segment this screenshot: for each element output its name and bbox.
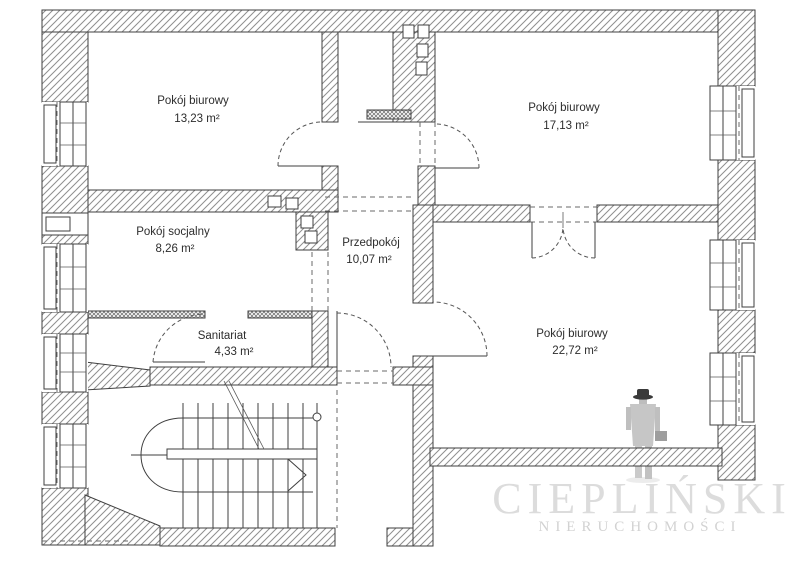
- room-name-label: Pokój socjalny: [136, 226, 210, 238]
- flue-box: [403, 25, 414, 38]
- wall-office3-bottom: [430, 448, 722, 466]
- wall-sanitariat-right: [312, 311, 328, 369]
- wall-stairs-angled-top: [85, 362, 150, 390]
- watermark-brand: CIEPLIŃSKI: [492, 474, 792, 523]
- room-name-label: Pokój biurowy: [536, 328, 608, 340]
- wall-stairs-bottom: [387, 528, 413, 546]
- room-name-label: Pokój biurowy: [528, 102, 600, 114]
- window-symbol: [42, 244, 88, 312]
- floor-plan: CIEPLIŃSKI NIERUCHOMOŚCI: [0, 0, 797, 562]
- flue-box: [416, 62, 427, 75]
- room-label-pokoj-biurowy-1: Pokój biurowy 13,23 m²: [157, 95, 229, 125]
- wall-between-office1-social: [88, 190, 338, 212]
- wall-between-office2-office3: [433, 205, 530, 222]
- door-swing: [278, 122, 322, 166]
- wall-left: [42, 312, 88, 334]
- room-name-label: Przedpokój: [342, 237, 400, 249]
- window-symbol: [710, 240, 755, 310]
- stairs-handrail-post: [313, 413, 321, 421]
- window-symbol: [42, 424, 88, 488]
- wall-right: [718, 160, 755, 240]
- wall-stairs-bottom: [160, 528, 335, 546]
- wall-left: [42, 488, 88, 545]
- wall-left: [42, 392, 88, 424]
- wall-right: [718, 425, 755, 480]
- flue-box: [286, 198, 298, 209]
- flue-box: [418, 25, 429, 38]
- vent-window-symbol: [42, 213, 88, 235]
- door-swing: [420, 122, 479, 168]
- door-swing: [433, 302, 487, 356]
- room-area-label: 10,07 m²: [346, 254, 392, 266]
- wall-corridor-right: [418, 166, 435, 205]
- wall-chimney-shaft: [393, 32, 435, 122]
- wall-office1-corridor: [322, 166, 338, 190]
- room-area-label: 8,26 m²: [156, 243, 195, 255]
- room-label-pokoj-socjalny: Pokój socjalny 8,26 m²: [136, 226, 210, 255]
- room-area-label: 13,23 m²: [174, 113, 220, 125]
- stairs-landing: [167, 449, 317, 459]
- room-area-label: 17,13 m²: [543, 120, 589, 132]
- wall-stairs-angled-bottom: [85, 495, 160, 545]
- room-name-label: Sanitariat: [198, 330, 247, 342]
- wall-right: [718, 10, 755, 86]
- double-door-swing: [530, 207, 597, 258]
- room-area-label: 22,72 m²: [552, 345, 598, 357]
- man-with-hat-icon: [626, 389, 667, 483]
- room-name-label: Pokój biurowy: [157, 95, 229, 107]
- wall-top: [42, 10, 755, 32]
- flue-box: [301, 216, 313, 228]
- flue-box: [417, 44, 428, 57]
- doors: [153, 122, 597, 383]
- window-symbol: [42, 334, 88, 392]
- wall-opening: [312, 252, 328, 311]
- wall-hall-office3: [413, 205, 433, 303]
- wall-sanitariat-partition: [248, 311, 312, 318]
- floor-plan-page: CIEPLIŃSKI NIERUCHOMOŚCI: [0, 0, 797, 562]
- room-label-pokoj-biurowy-2: Pokój biurowy 17,13 m²: [528, 102, 600, 132]
- flue-box: [305, 231, 317, 243]
- window-symbol: [42, 102, 88, 166]
- flue-box: [268, 196, 281, 207]
- walls: [42, 10, 755, 546]
- wall-stairs-top: [150, 367, 337, 385]
- window-symbol: [710, 86, 755, 160]
- room-labels: Pokój biurowy 13,23 m² Pokój biurowy 17,…: [136, 95, 608, 358]
- room-label-pokoj-biurowy-3: Pokój biurowy 22,72 m²: [536, 328, 608, 357]
- watermark-subtitle: NIERUCHOMOŚCI: [538, 518, 741, 535]
- door-swing: [337, 311, 393, 383]
- wall-right: [718, 310, 755, 353]
- wall-between-office2-office3: [597, 205, 718, 222]
- wall-office1-corridor: [322, 32, 338, 122]
- room-area-label: 4,33 m²: [215, 346, 254, 358]
- wall-left: [42, 32, 88, 102]
- room-label-sanitariat: Sanitariat 4,33 m²: [198, 330, 254, 358]
- window-symbol: [710, 353, 755, 425]
- room-label-przedpokoj: Przedpokój 10,07 m²: [342, 237, 400, 266]
- wall-hall-bottom: [393, 367, 433, 385]
